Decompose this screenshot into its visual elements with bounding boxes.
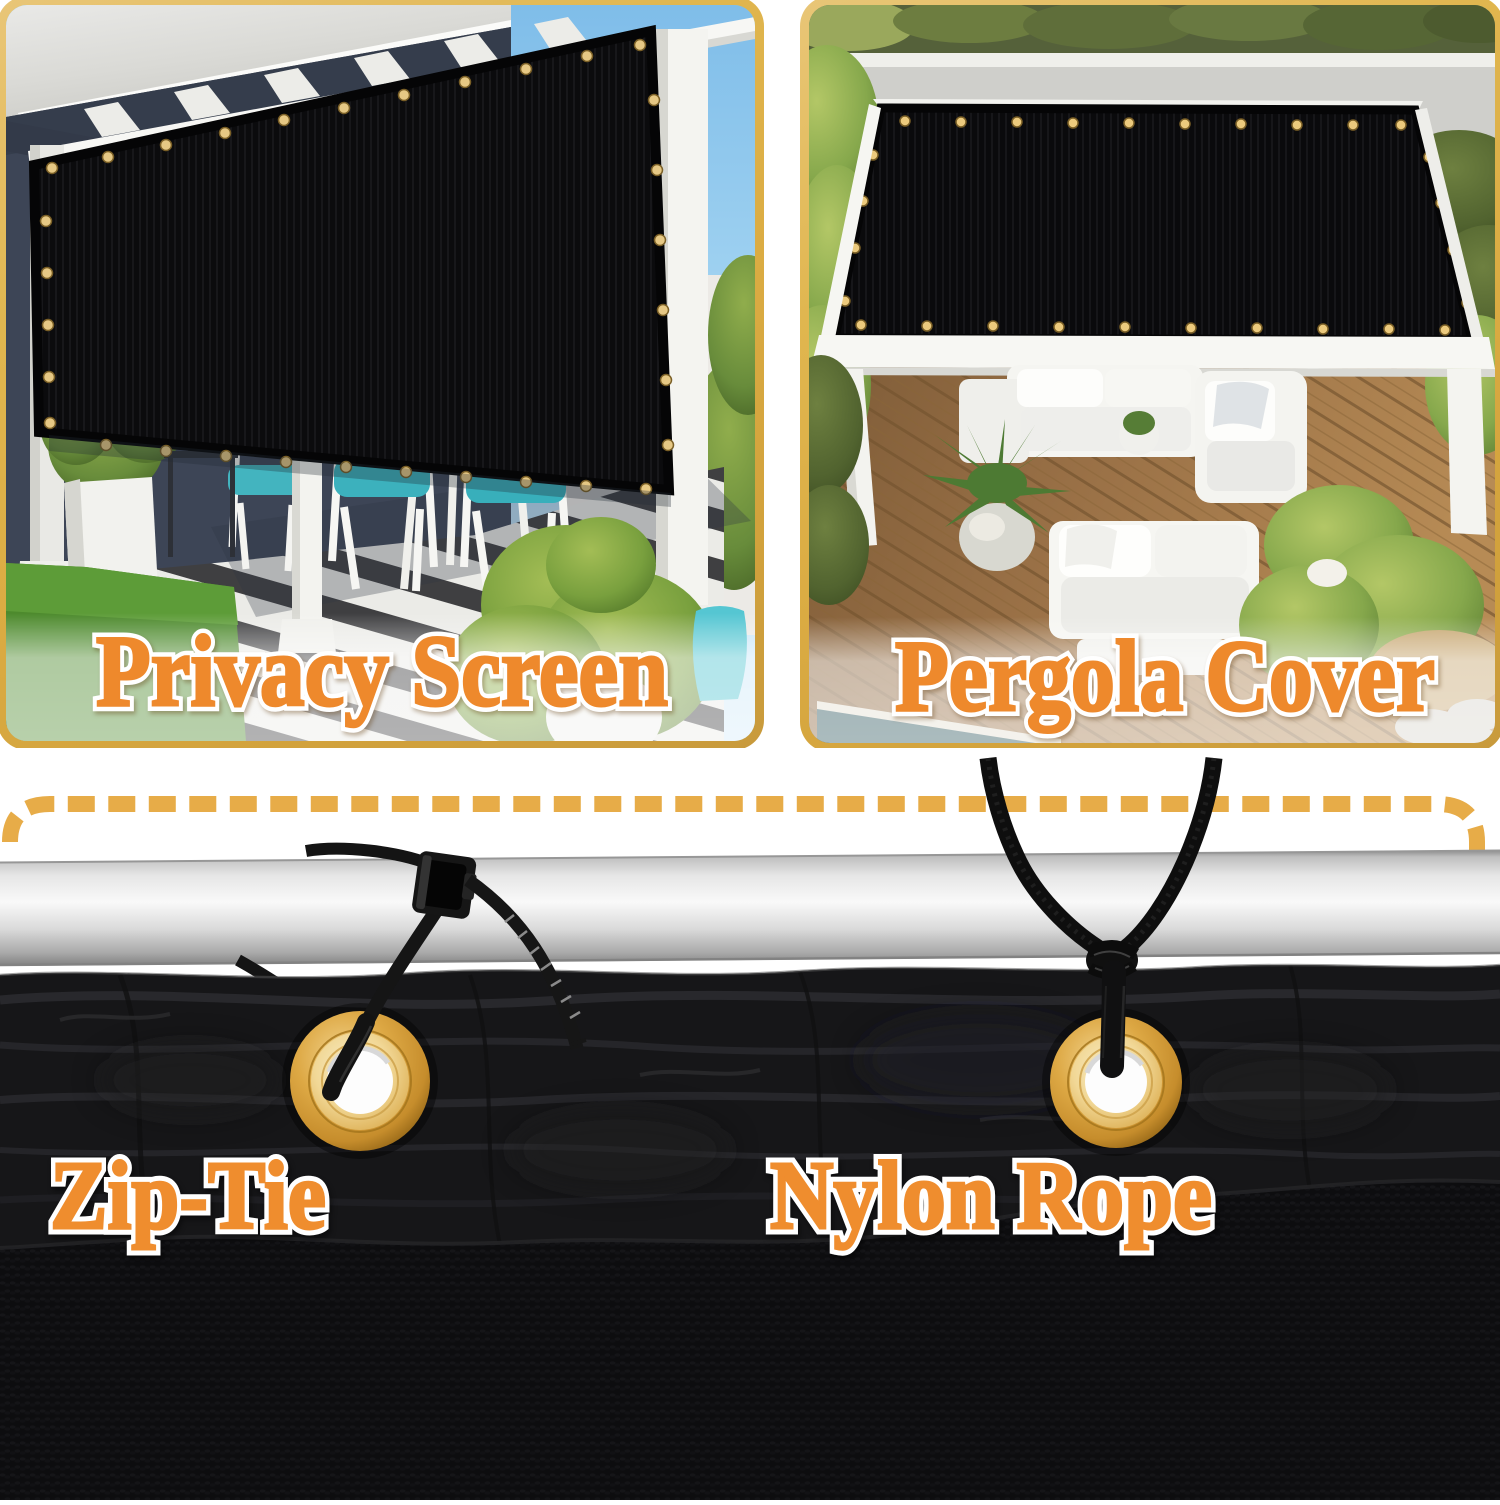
svg-text:Nylon Rope: Nylon Rope — [770, 1142, 1212, 1250]
svg-text:Zip-Tie: Zip-Tie — [50, 1142, 326, 1250]
svg-text:Privacy Screen: Privacy Screen — [96, 615, 668, 728]
svg-text:Pergola Cover: Pergola Cover — [895, 620, 1435, 733]
